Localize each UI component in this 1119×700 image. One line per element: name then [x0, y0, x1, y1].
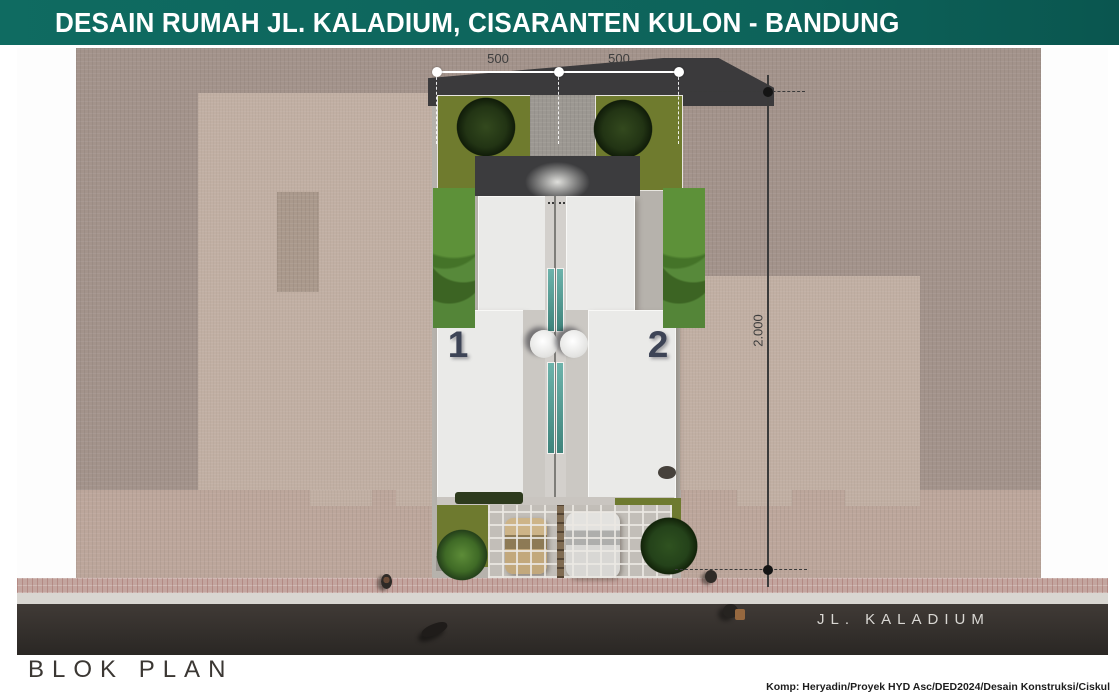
curb — [17, 593, 1108, 604]
tree-front-left — [430, 523, 494, 587]
dimension-dot — [674, 67, 684, 77]
house-roof-unit1-back — [478, 196, 547, 315]
roof-vent-dot — [548, 202, 550, 204]
dimension-label-500-left: 500 — [478, 51, 518, 66]
skylight-unit1-front — [547, 362, 555, 454]
skylight-unit2-front — [556, 362, 564, 454]
carport-divider — [557, 505, 564, 578]
dimension-label-2000: 2.000 — [751, 306, 766, 356]
roof-void-band — [475, 156, 640, 196]
dimension-extension-line — [436, 72, 437, 144]
dimension-label-500-right: 500 — [599, 51, 639, 66]
front-hedge — [455, 492, 523, 504]
neighbor-roof-right-bump — [737, 490, 792, 506]
slide: DESAIN RUMAH JL. KALADIUM, CISARANTEN KU… — [0, 0, 1119, 700]
neighbor-roof-right-bump — [845, 490, 920, 506]
palm-tree-right — [633, 510, 705, 582]
cart-box — [735, 609, 745, 620]
slide-title: DESAIN RUMAH JL. KALADIUM, CISARANTEN KU… — [55, 0, 900, 45]
neighbor-roof-vent — [277, 192, 319, 292]
credit-text: Komp: Heryadin/Proyek HYD Asc/DED2024/De… — [766, 681, 1110, 693]
unit1-label: 1 — [443, 324, 473, 366]
dimension-extension-line — [558, 72, 559, 144]
person-sidewalk-left — [381, 574, 392, 589]
bench — [658, 466, 676, 479]
dimension-extension-line — [675, 569, 807, 570]
roof-vent-dot — [559, 202, 561, 204]
water-tank-unit1 — [530, 330, 558, 358]
dimension-dot — [763, 565, 773, 575]
dimension-dot — [554, 67, 564, 77]
dimension-dot — [763, 87, 773, 97]
hedge-right — [663, 188, 705, 328]
roof-vent-dot — [563, 202, 565, 204]
skylight-unit2-back — [556, 268, 564, 332]
tree-back-right — [586, 92, 660, 166]
neighbor-roof-left-bump — [396, 490, 432, 506]
neighbor-roof-left-bump — [310, 490, 372, 506]
house-roof-unit2-back — [566, 196, 635, 315]
dimension-dot — [432, 67, 442, 77]
unit2-label: 2 — [643, 324, 673, 366]
header-bar: DESAIN RUMAH JL. KALADIUM, CISARANTEN KU… — [0, 0, 1119, 45]
neighbor-roof-right — [680, 276, 920, 490]
skylight-unit1-back — [547, 268, 555, 332]
dimension-extension-line — [678, 72, 679, 144]
roof-vent-dot — [552, 202, 554, 204]
dimension-line-right — [767, 75, 769, 587]
tree-back-left — [449, 90, 523, 164]
hedge-left — [433, 188, 475, 328]
blok-plan-figure: 1 2 JL. KALADIUM 5 — [17, 48, 1108, 655]
dimension-extension-line — [689, 91, 805, 92]
sidewalk — [17, 578, 1108, 593]
footer-label: BLOK PLAN — [28, 656, 233, 684]
person-sidewalk-right — [705, 570, 717, 583]
water-tank-unit2 — [560, 330, 588, 358]
street-label: JL. KALADIUM — [817, 611, 990, 628]
